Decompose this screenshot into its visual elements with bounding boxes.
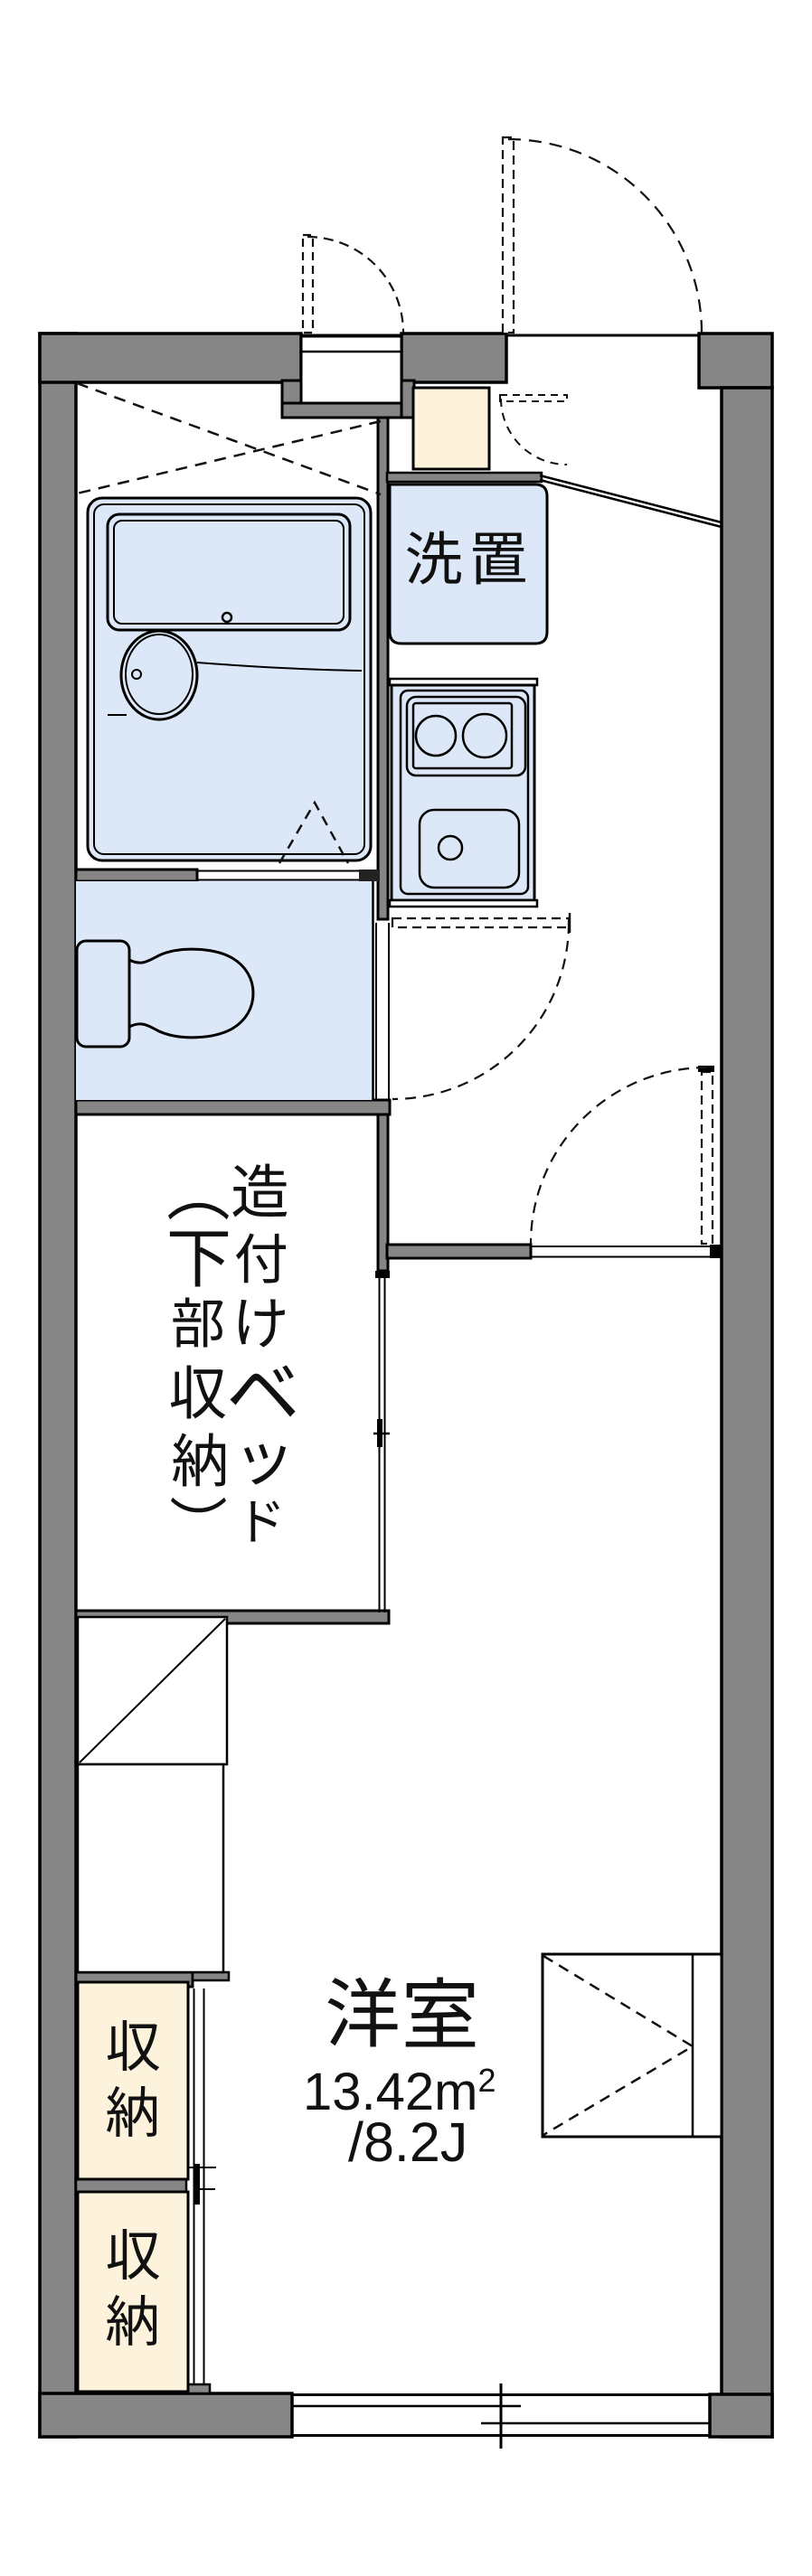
svg-text:/8.2J: /8.2J (348, 2111, 467, 2173)
